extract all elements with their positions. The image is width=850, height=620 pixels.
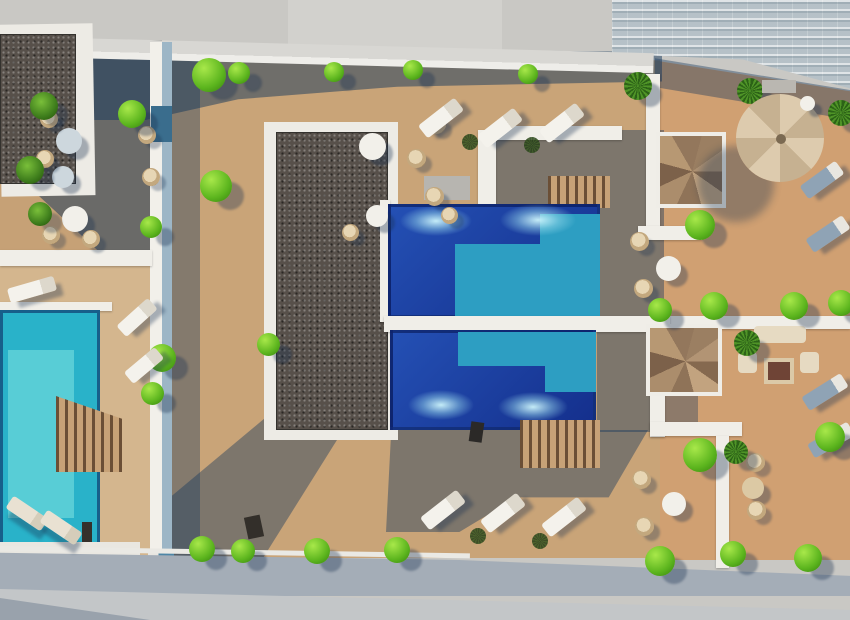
bench <box>762 80 796 93</box>
tree-center-1 <box>200 170 232 202</box>
shrub-walkway-2 <box>231 539 255 563</box>
plant-2 <box>16 156 44 184</box>
deck-steps-lower <box>520 420 600 468</box>
palm-shadow-3 <box>470 528 486 544</box>
plant-5 <box>140 216 162 238</box>
upper-pool-shallow <box>455 244 600 318</box>
shrub-walkway-6 <box>720 541 746 567</box>
round-table-shaded-1 <box>56 128 82 154</box>
lower-pool-caustic-2 <box>498 392 568 422</box>
gravel-roof-tower <box>276 132 388 430</box>
wicker-chair-15 <box>635 517 654 536</box>
round-table-tan <box>742 477 764 499</box>
wicker-chair-17 <box>747 501 766 520</box>
small-table <box>800 96 815 111</box>
spiral-staircase-1 <box>656 132 726 208</box>
shrub-center-2 <box>141 382 164 405</box>
tree-south-1 <box>683 438 717 472</box>
shrub-row-f-4 <box>828 290 850 316</box>
tree-row-2 <box>228 62 250 84</box>
tree-east-1 <box>815 422 845 452</box>
palm-row-1 <box>624 72 652 100</box>
shrub-row-f-3 <box>780 292 808 320</box>
scene <box>0 0 850 620</box>
round-table-5 <box>662 492 686 516</box>
wall-horizontal-g2 <box>650 422 742 436</box>
plant-1 <box>30 92 58 120</box>
wicker-chair-6 <box>82 230 100 248</box>
shrub-row-f-2 <box>700 292 728 320</box>
wicker-chair-10 <box>441 207 458 224</box>
shrub-walkway-5 <box>645 546 675 576</box>
shrub-walkway-7 <box>794 544 822 572</box>
armchair-2 <box>800 352 819 373</box>
tree-row-5 <box>518 64 538 84</box>
lower-pool-shallow-2 <box>545 332 596 392</box>
dark-object <box>82 522 92 542</box>
round-table-1 <box>62 206 88 232</box>
wicker-chair-16 <box>746 453 765 472</box>
lower-pool-caustic-1 <box>408 390 474 420</box>
wicker-chair-4 <box>142 168 160 186</box>
shrub-walkway-3 <box>304 538 330 564</box>
shrub-row-f-1 <box>648 298 672 322</box>
spiral-staircase-2 <box>646 324 722 396</box>
upper-roof-band <box>288 0 502 50</box>
shrub-walkway-4 <box>384 537 410 563</box>
grill-object-1 <box>469 421 485 443</box>
palm-shadow-1 <box>462 134 478 150</box>
palm-east-1 <box>828 100 850 126</box>
shrub-walkway-1 <box>189 536 215 562</box>
round-table-2 <box>359 133 386 160</box>
wicker-chair-9 <box>425 187 444 206</box>
coffee-table <box>764 358 794 384</box>
wicker-chair-11 <box>342 224 359 241</box>
palm-shadow-4 <box>532 533 548 549</box>
wicker-chair-12 <box>630 232 649 251</box>
wicker-chair-14 <box>632 470 651 489</box>
round-table-shaded-2 <box>52 166 74 188</box>
round-table-3 <box>366 205 388 227</box>
shrub-east-1 <box>685 210 715 240</box>
palm-east-3 <box>724 440 748 464</box>
plant-4 <box>28 202 52 226</box>
shrub-center-3 <box>257 333 280 356</box>
plant-3 <box>118 100 146 128</box>
upper-pool-caustic-2 <box>500 204 576 236</box>
palm-east-2 <box>734 330 760 356</box>
upper-pool-caustic-1 <box>400 206 472 236</box>
wicker-chair-8 <box>407 149 426 168</box>
wicker-chair-13 <box>634 279 653 298</box>
sofa <box>754 326 806 343</box>
parasol-hub <box>776 134 786 144</box>
tree-row-3 <box>324 62 344 82</box>
wall-horizontal-b <box>0 250 152 266</box>
round-table-4 <box>656 256 681 281</box>
wicker-chair-5 <box>42 226 60 244</box>
tree-row-1 <box>192 58 226 92</box>
palm-shadow-2 <box>524 137 540 153</box>
wicker-chair-3 <box>138 126 156 144</box>
tree-row-4 <box>403 60 423 80</box>
